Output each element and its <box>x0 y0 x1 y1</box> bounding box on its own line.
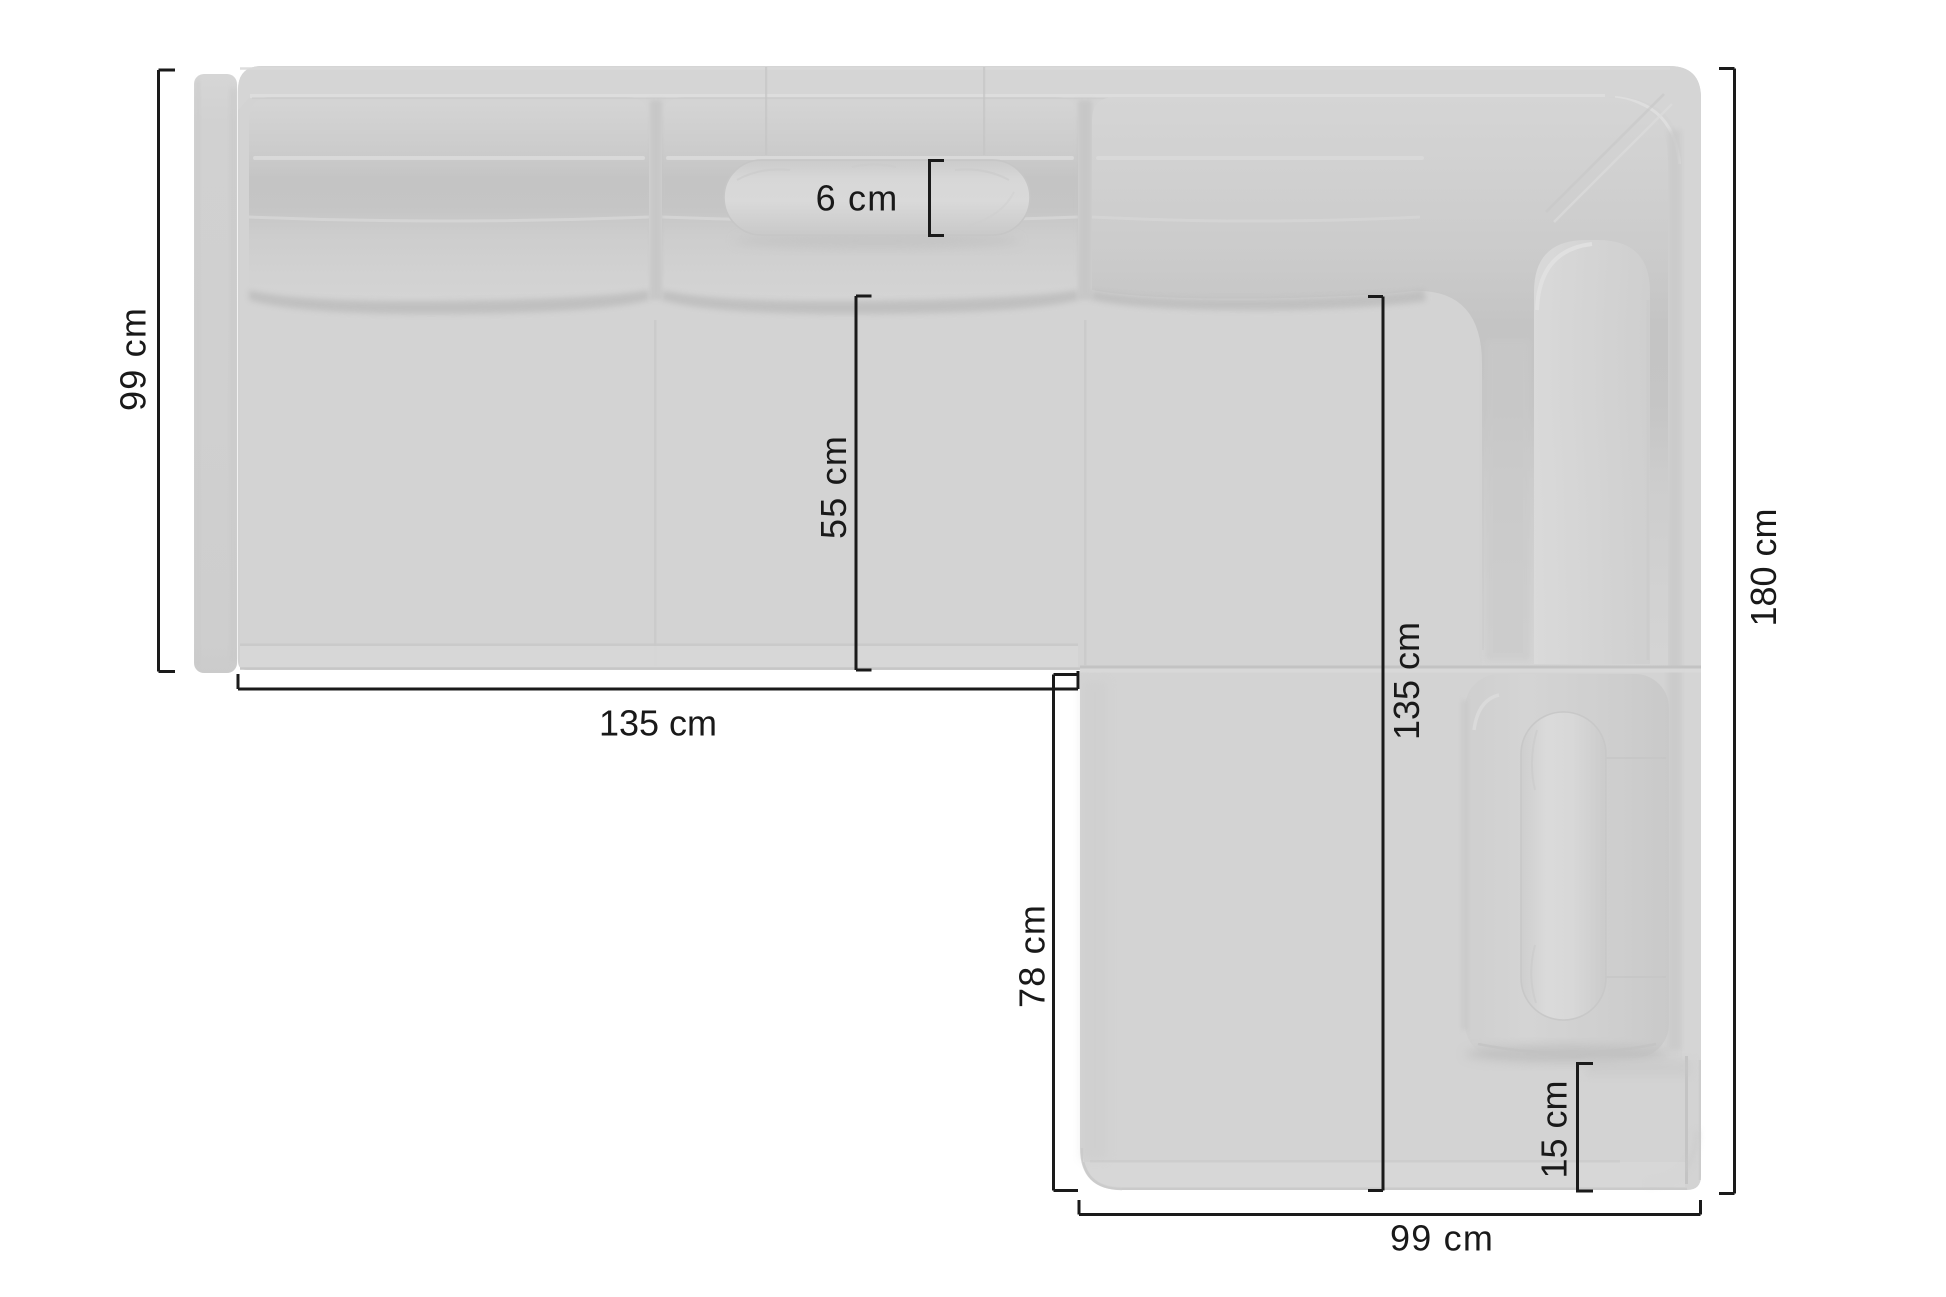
svg-text:99 cm: 99 cm <box>1390 1218 1494 1259</box>
svg-text:135 cm: 135 cm <box>1386 622 1427 740</box>
svg-text:180 cm: 180 cm <box>1743 508 1784 626</box>
svg-text:6 cm: 6 cm <box>816 178 899 219</box>
svg-text:135 cm: 135 cm <box>599 703 717 744</box>
svg-text:99 cm: 99 cm <box>113 307 154 411</box>
svg-text:55 cm: 55 cm <box>813 435 854 539</box>
svg-text:78 cm: 78 cm <box>1012 904 1053 1008</box>
svg-text:15 cm: 15 cm <box>1534 1080 1575 1178</box>
